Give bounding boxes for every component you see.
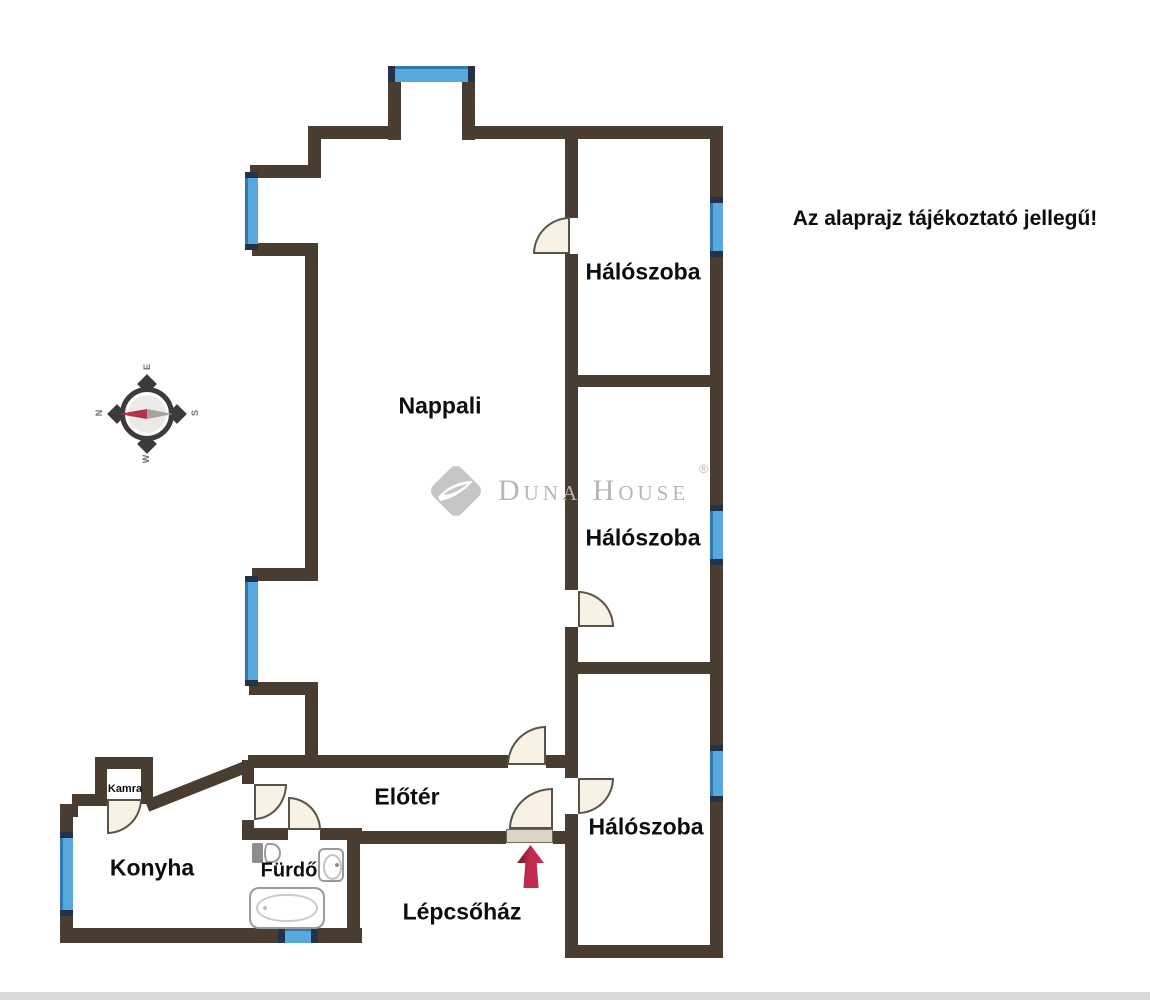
window — [245, 172, 258, 250]
bathtub-icon — [249, 887, 325, 929]
compass-letter-left: N — [94, 410, 104, 417]
registered-mark: ® — [699, 462, 708, 476]
wall-segment — [242, 828, 288, 840]
room-label-hallway: Előtér — [374, 784, 439, 811]
bottom-edge-strip — [0, 992, 1150, 1000]
wall-segment — [710, 139, 723, 197]
compass-letter-top: E — [142, 364, 152, 370]
wall-segment — [308, 126, 401, 139]
wall-segment — [565, 662, 710, 674]
door-arc-kitchen — [254, 784, 287, 820]
door-arc-living-room — [507, 726, 546, 765]
door-arc-pantry — [107, 799, 142, 834]
compass-letter-right: S — [190, 410, 200, 416]
window — [60, 832, 73, 916]
room-label-living-room: Nappali — [398, 393, 481, 420]
wall-segment — [565, 375, 710, 387]
wall-segment — [565, 627, 578, 778]
window — [710, 505, 723, 565]
wall-segment — [145, 760, 252, 812]
entrance-arrow-icon — [517, 845, 544, 888]
duna-house-watermark: Duna House ® — [424, 460, 708, 522]
compass-letter-bottom: W — [141, 455, 151, 464]
door-arc-entrance — [509, 788, 553, 829]
window — [388, 66, 475, 82]
wall-segment — [242, 760, 254, 784]
room-label-bedroom-2: Hálószoba — [585, 525, 700, 552]
room-label-kitchen: Konyha — [110, 855, 194, 882]
wall-segment — [553, 831, 578, 844]
room-label-bedroom-3: Hálószoba — [588, 814, 703, 841]
window — [245, 576, 258, 686]
bathtub-drain — [263, 906, 267, 910]
window — [710, 197, 723, 257]
wall-segment — [462, 126, 723, 139]
wall-segment — [250, 165, 318, 178]
wall-segment — [305, 243, 318, 573]
entrance-threshold — [506, 829, 553, 843]
wall-segment — [355, 831, 506, 844]
compass-rose-icon — [107, 374, 187, 454]
room-label-bathroom: Fürdő — [261, 860, 318, 883]
window — [278, 928, 318, 943]
duna-house-diamond-icon — [424, 460, 488, 522]
wall-segment — [252, 568, 318, 581]
wall-segment — [248, 755, 508, 768]
floorplan-canvas: Nappali Hálószoba Hálószoba Hálószoba Ko… — [0, 0, 1150, 1000]
wall-segment — [60, 928, 278, 943]
sink-faucet — [335, 863, 339, 867]
room-label-bedroom-1: Hálószoba — [585, 259, 700, 286]
door-arc-bathroom — [288, 797, 321, 830]
door-arc-bedroom-3 — [578, 778, 614, 814]
door-arc-bedroom-1 — [533, 217, 570, 254]
wall-segment — [565, 945, 723, 958]
sink-icon — [318, 848, 344, 882]
sink-basin — [323, 854, 342, 880]
wall-segment — [565, 139, 578, 218]
wall-segment — [347, 828, 360, 943]
watermark-brand-text: Duna House — [498, 474, 689, 508]
wall-segment — [710, 565, 723, 745]
disclaimer-text: Az alaprajz tájékoztató jellegű! — [793, 207, 1098, 231]
wall-segment — [710, 802, 723, 958]
window — [710, 745, 723, 802]
wall-segment — [60, 804, 73, 832]
room-label-staircase: Lépcsőház — [403, 899, 522, 926]
room-label-pantry: Kamra — [108, 783, 142, 795]
wall-segment — [710, 257, 723, 505]
wall-segment — [565, 254, 578, 590]
door-arc-bedroom-2 — [578, 591, 614, 627]
